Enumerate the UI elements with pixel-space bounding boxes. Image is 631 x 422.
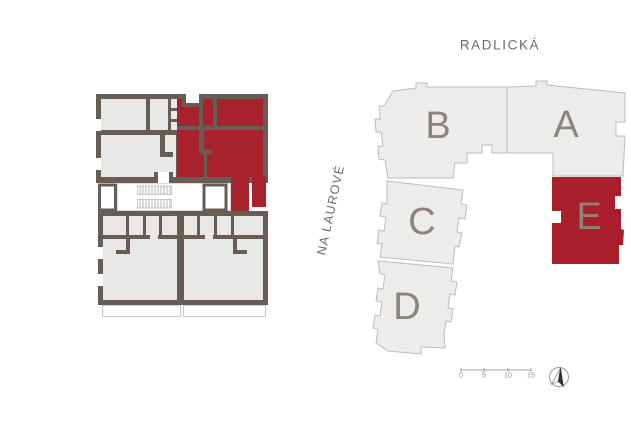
terrace-notch [186,94,199,103]
scale-tick-15: 15 [527,373,535,380]
floorplan-gray-rooms [101,99,177,177]
building-d-label[interactable]: D [393,288,420,326]
north-arrow-icon [550,367,569,387]
scale-bar [461,368,531,372]
shaft-right [204,185,226,210]
floor-plan [96,94,268,317]
plan-canvas [0,0,631,422]
scale-tick-0: 0 [459,373,463,380]
building-a-label[interactable]: A [553,106,578,144]
plan-page: RADLICKÁ NA LAUROVÉ B A C D E 0 5 10 15 [0,0,631,422]
scale-tick-10: 10 [504,373,512,380]
building-b-a-shape[interactable] [375,81,625,178]
scale-tick-5: 5 [482,373,486,380]
building-c-label[interactable]: C [408,203,435,241]
building-b-label[interactable]: B [425,107,450,145]
street-label-radlicka: RADLICKÁ [460,38,540,52]
shaft-left [100,185,116,210]
building-e-label[interactable]: E [576,198,601,236]
balconies [103,306,266,317]
